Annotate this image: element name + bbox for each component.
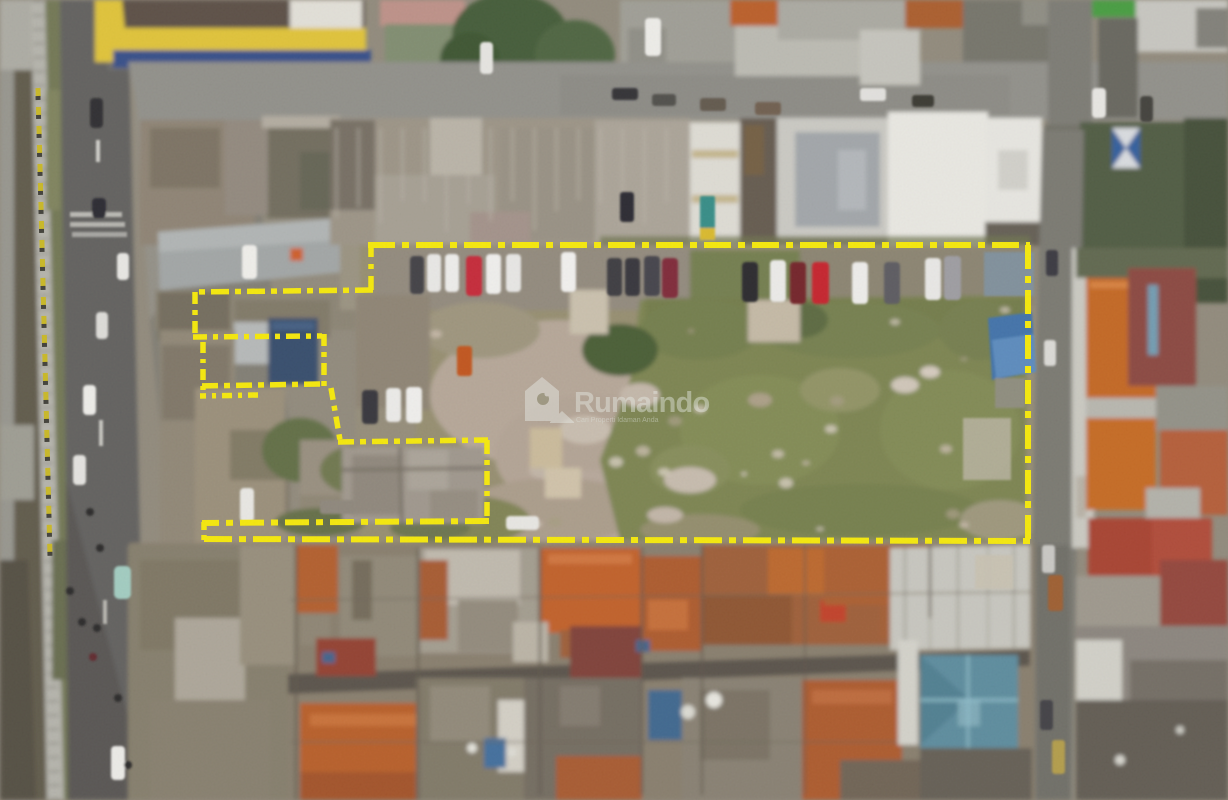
svg-text:Rumaindo: Rumaindo	[574, 387, 709, 419]
svg-text:Cari Properti Idaman Anda: Cari Properti Idaman Anda	[576, 417, 659, 424]
